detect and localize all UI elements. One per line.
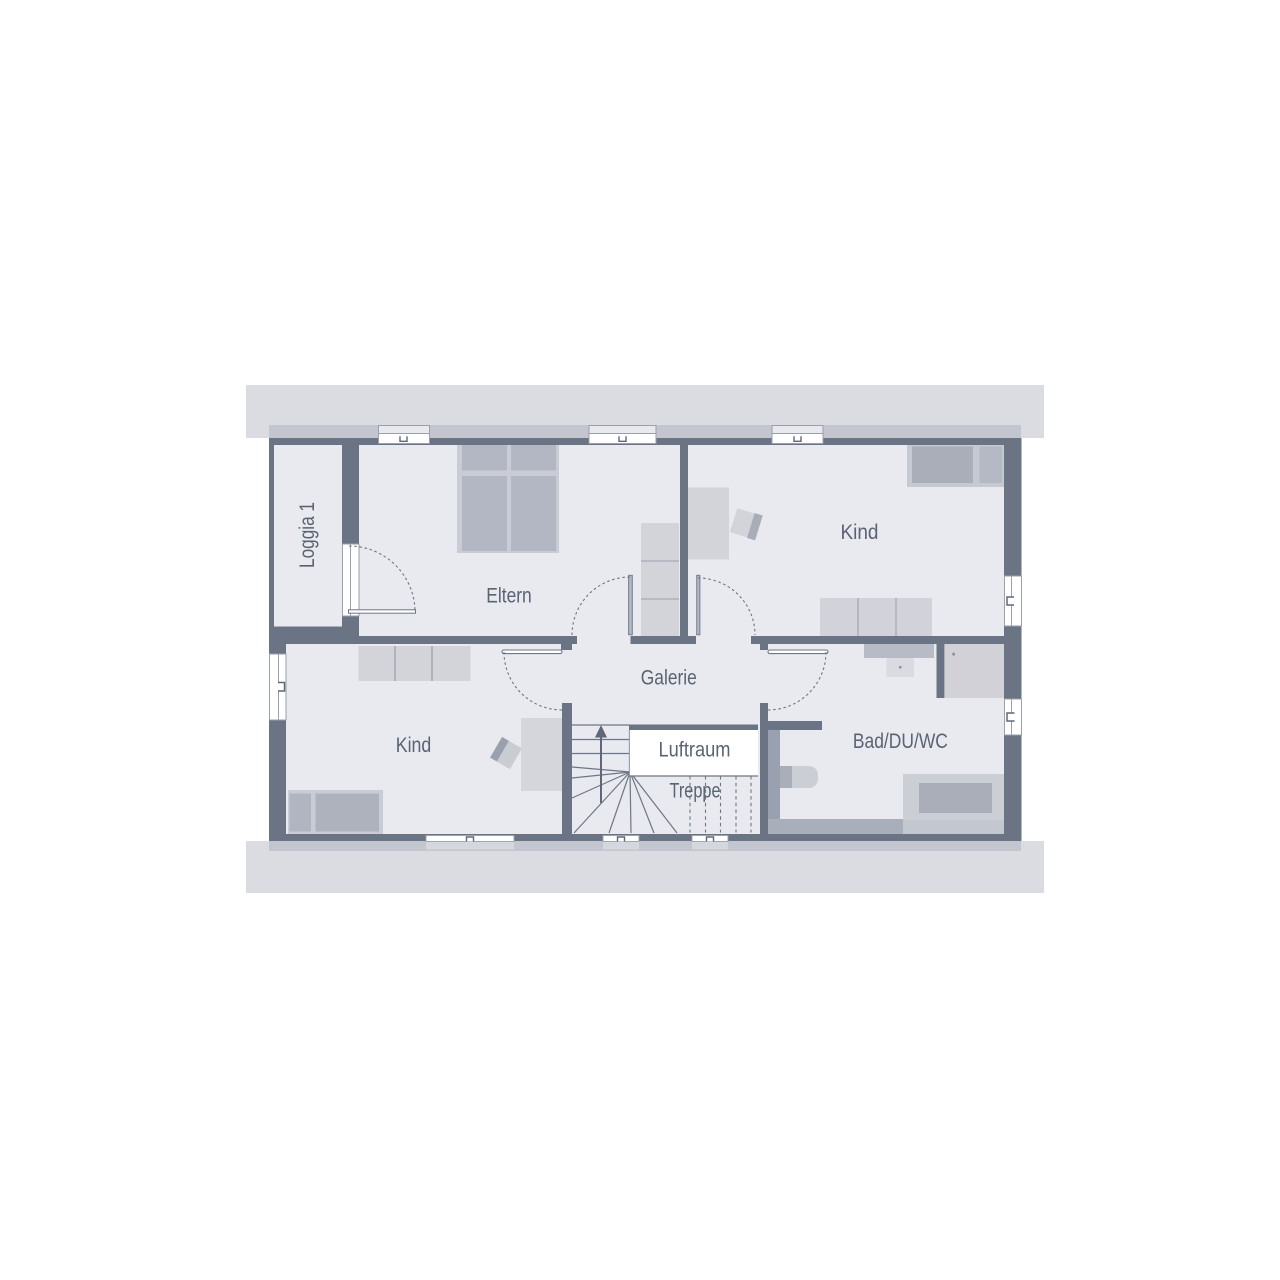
svg-text:Bad/DU/WC: Bad/DU/WC — [853, 729, 948, 753]
svg-text:Luftraum: Luftraum — [659, 738, 731, 762]
svg-text:Kind: Kind — [841, 520, 879, 544]
svg-text:Treppe: Treppe — [670, 779, 721, 803]
svg-text:Eltern: Eltern — [486, 583, 532, 607]
svg-text:Loggia 1: Loggia 1 — [295, 502, 319, 568]
svg-text:Kind: Kind — [396, 733, 432, 757]
svg-text:Galerie: Galerie — [641, 666, 697, 690]
